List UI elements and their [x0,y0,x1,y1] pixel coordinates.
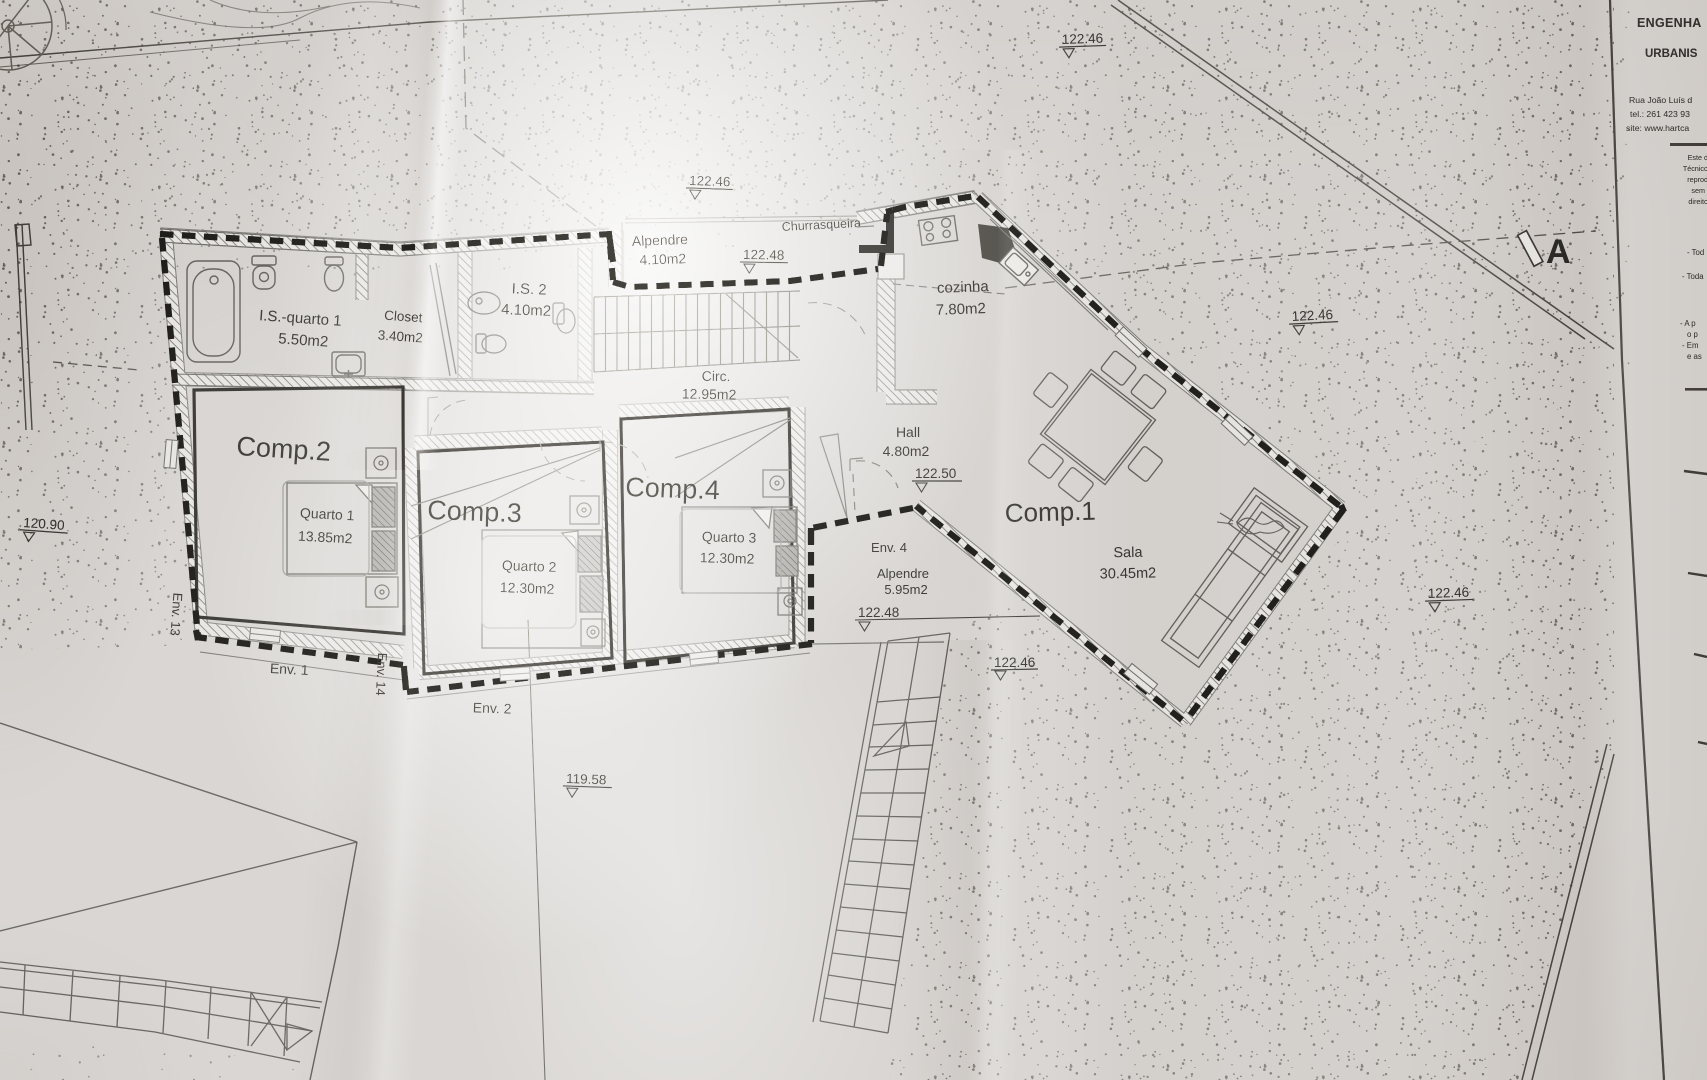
svg-text:A: A [1546,233,1571,271]
svg-text:o p: o p [1687,330,1699,339]
svg-text:Alpendre: Alpendre [632,231,689,249]
svg-text:122.50: 122.50 [915,466,956,481]
svg-text:3.40m2: 3.40m2 [377,327,423,345]
svg-text:- Toda: - Toda [1682,272,1704,281]
svg-text:I.S.-quarto 1: I.S.-quarto 1 [259,307,343,330]
svg-text:Alpendre: Alpendre [877,566,929,581]
svg-text:122.46: 122.46 [1428,585,1470,601]
svg-text:Env. 2: Env. 2 [473,699,512,716]
svg-text:4.80m2: 4.80m2 [883,443,930,459]
svg-text:119.58: 119.58 [566,771,607,787]
svg-text:Quarto 1: Quarto 1 [300,505,355,524]
svg-text:122.46: 122.46 [1062,31,1104,47]
svg-text:site: www.hartca: site: www.hartca [1626,123,1689,133]
svg-text:122.46: 122.46 [1291,307,1333,324]
svg-text:7.80m2: 7.80m2 [936,300,987,319]
svg-text:direito: direito [1688,197,1707,206]
svg-text:Env. 4: Env. 4 [871,540,907,555]
svg-text:12.95m2: 12.95m2 [682,386,737,403]
svg-text:Comp.1: Comp.1 [1004,496,1096,528]
svg-text:- Em: - Em [1682,341,1698,350]
svg-text:Comp.2: Comp.2 [236,431,332,467]
svg-text:sem: sem [1691,186,1705,195]
svg-text:Closet: Closet [384,308,423,326]
svg-text:4.10m2: 4.10m2 [639,250,686,268]
svg-text:reprod: reprod [1687,175,1707,184]
svg-text:122.48: 122.48 [858,605,899,620]
svg-text:tel.: 261 423 93: tel.: 261 423 93 [1630,109,1690,119]
svg-text:13.85m2: 13.85m2 [298,528,353,547]
svg-text:- A p: - A p [1680,319,1696,328]
svg-text:122.46: 122.46 [994,655,1035,670]
svg-text:Técnico: Técnico [1683,164,1707,173]
svg-text:Circ.: Circ. [702,368,731,384]
svg-text:cozinha: cozinha [937,278,990,297]
svg-text:4.10m2: 4.10m2 [501,301,552,320]
svg-text:Rua João Luís d: Rua João Luís d [1629,95,1692,105]
svg-text:Env. 14: Env. 14 [373,652,390,696]
svg-text:Este d: Este d [1688,153,1707,162]
svg-text:Quarto 2: Quarto 2 [502,557,557,575]
svg-text:URBANIS: URBANIS [1645,48,1698,60]
svg-text:I.S. 2: I.S. 2 [511,280,547,298]
svg-text:e as: e as [1687,352,1702,361]
svg-text:12.30m2: 12.30m2 [700,549,755,566]
svg-text:122.48: 122.48 [743,247,785,263]
svg-text:30.45m2: 30.45m2 [1100,566,1157,583]
svg-text:5.95m2: 5.95m2 [884,582,927,597]
svg-text:Quarto 3: Quarto 3 [702,528,757,545]
svg-text:- Tod: - Tod [1687,248,1704,257]
svg-text:Sala: Sala [1113,545,1143,562]
svg-text:Comp.4: Comp.4 [625,472,721,505]
svg-text:12.30m2: 12.30m2 [500,579,555,597]
svg-text:Env. 1: Env. 1 [270,660,310,678]
svg-text:Env. 13: Env. 13 [168,592,186,636]
svg-text:Hall: Hall [896,424,920,440]
svg-text:ENGENHA: ENGENHA [1637,16,1702,30]
svg-text:Comp.3: Comp.3 [427,495,523,528]
svg-text:5.50m2: 5.50m2 [278,330,329,350]
svg-text:122.46: 122.46 [689,173,731,189]
